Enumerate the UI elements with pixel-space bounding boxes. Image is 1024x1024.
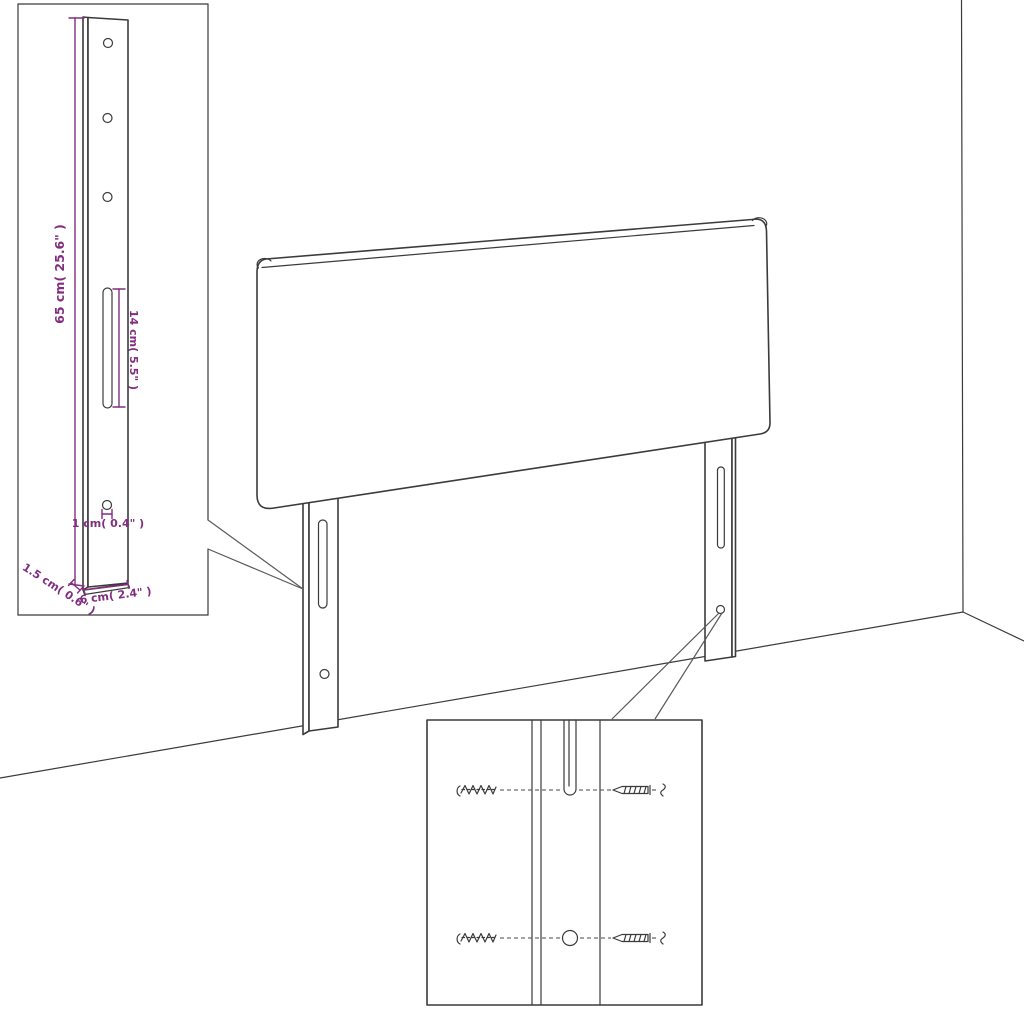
left-leg-side-face (303, 502, 309, 735)
bracket-slot (103, 288, 112, 408)
left-leg (303, 484, 338, 735)
callout-lines-left (208, 520, 303, 589)
bracket-hole-2 (103, 114, 112, 123)
bracket-hole-3 (103, 193, 112, 202)
bracket-bottom-hole (103, 501, 112, 510)
left-leg-hole (320, 670, 329, 679)
floor-line-right (963, 612, 1024, 641)
bracket-drawing (83, 17, 130, 595)
wall-corner-line (962, 0, 964, 612)
headboard-panel (257, 218, 770, 509)
dim-65cm-tick-bottom (69, 584, 84, 586)
diagram-canvas: 65 cm( 25.6" ) 14 cm( 5.5" ) 1 cm( 0.4" … (0, 0, 1024, 1024)
left-leg-slot (319, 520, 328, 608)
magnified-hole (563, 931, 578, 946)
right-leg-slot (718, 467, 725, 548)
dim-14cm-label: 14 cm( 5.5" ) (127, 310, 140, 390)
right-leg-hole (717, 606, 725, 614)
dim-65cm-label: 65 cm( 25.6" ) (52, 224, 67, 324)
panel-outline (257, 219, 770, 508)
right-leg-side-face (732, 434, 736, 657)
dim-1cm-label: 1 cm( 0.4" ) (72, 517, 144, 530)
bracket-detail-box: 65 cm( 25.6" ) 14 cm( 5.5" ) 1 cm( 0.4" … (18, 4, 208, 617)
hardware-detail-box (427, 720, 702, 1005)
bracket-hole-1 (104, 39, 113, 48)
diagram-stage: 65 cm( 25.6" ) 14 cm( 5.5" ) 1 cm( 0.4" … (0, 0, 1024, 1024)
right-leg (705, 434, 736, 661)
